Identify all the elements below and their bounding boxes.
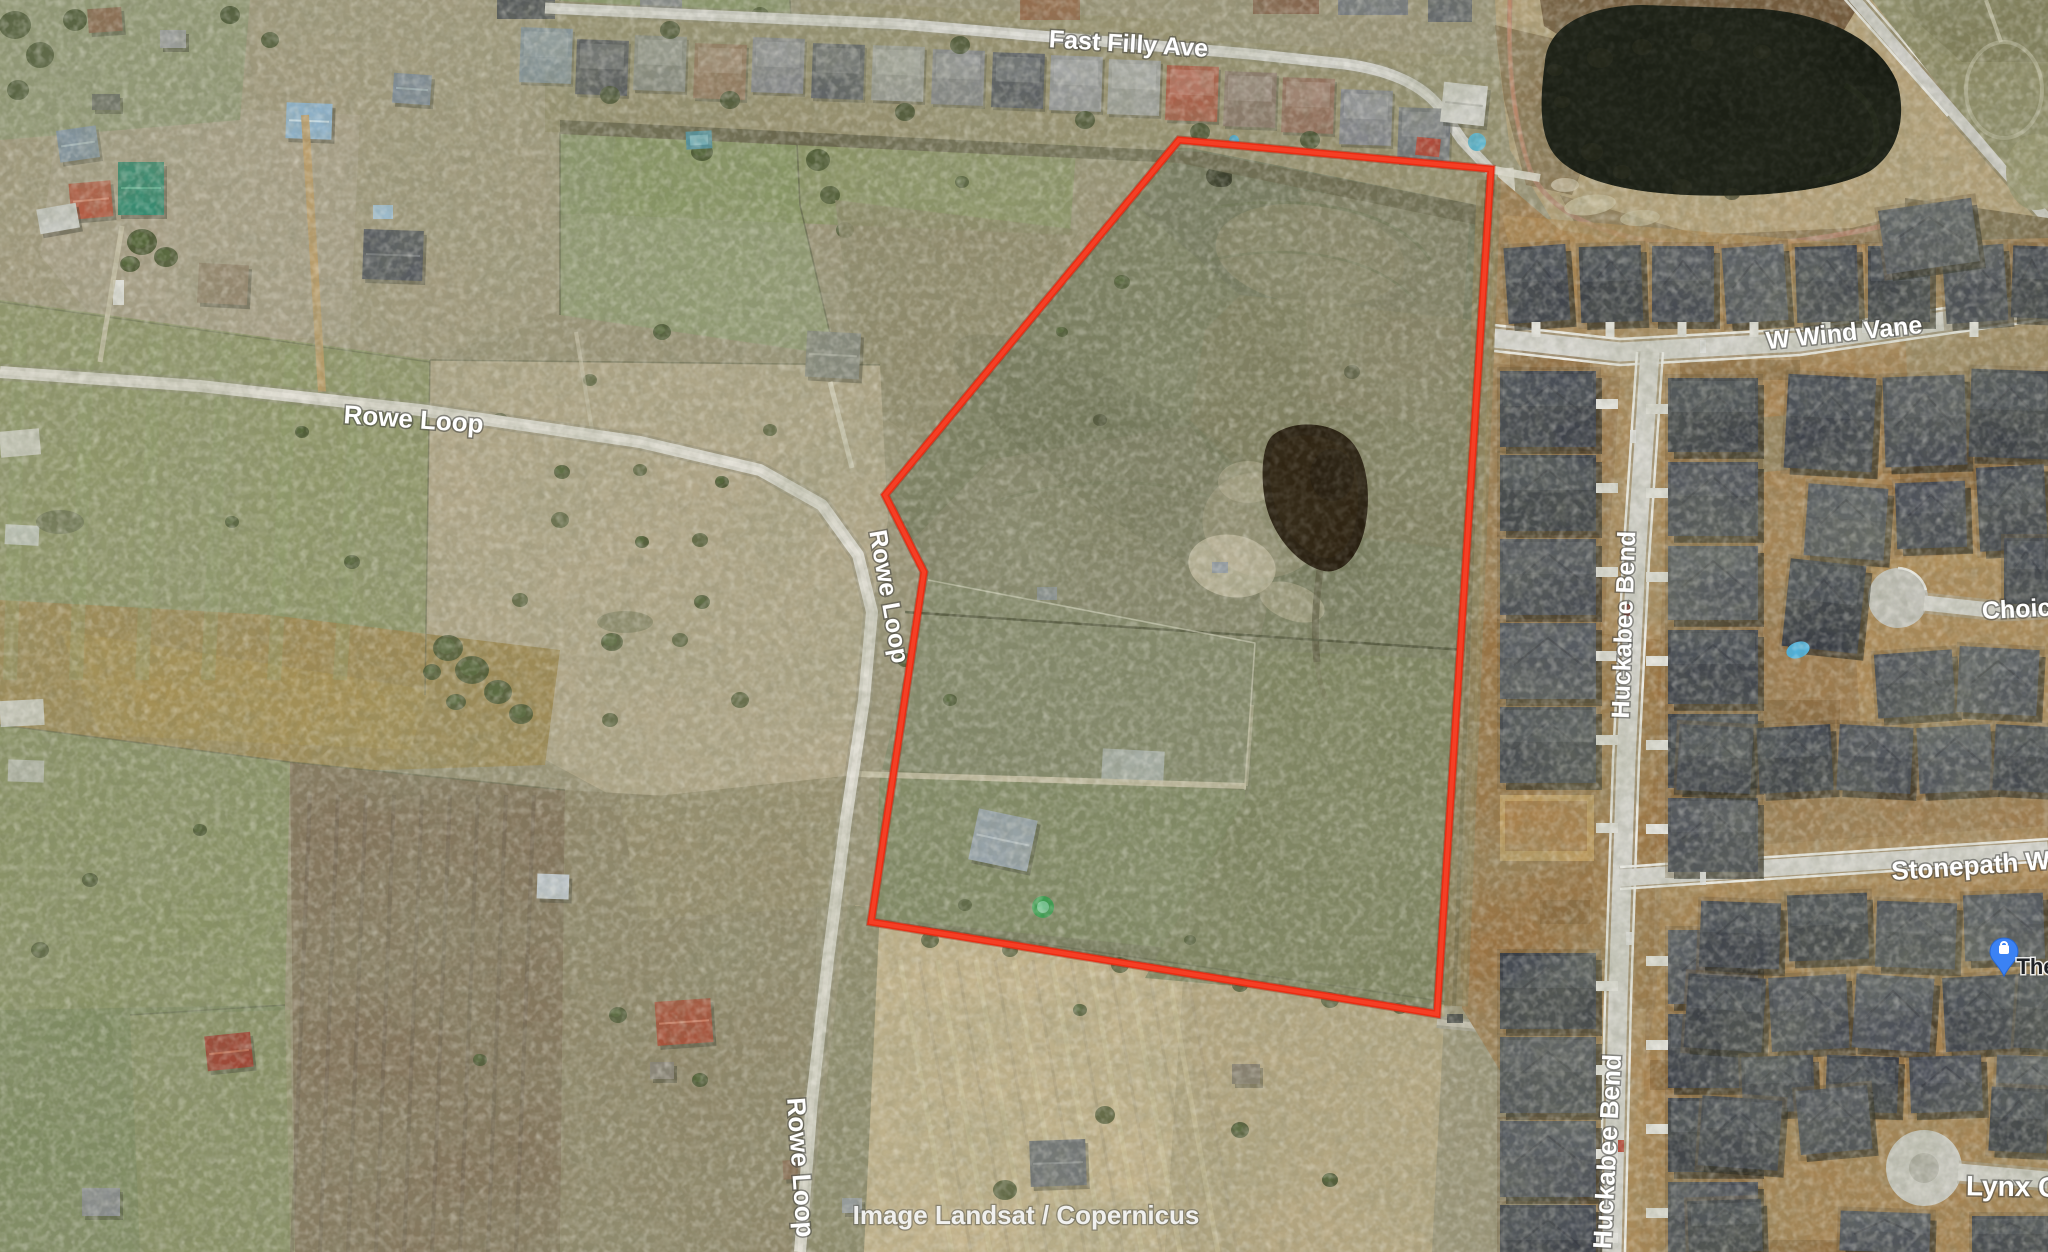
svg-text:Image Landsat / Copernicus: Image Landsat / Copernicus — [853, 1200, 1200, 1230]
svg-text:The: The — [2016, 954, 2048, 979]
svg-text:Choice: Choice — [1981, 593, 2048, 625]
svg-text:Lynx C: Lynx C — [1966, 1170, 2048, 1203]
